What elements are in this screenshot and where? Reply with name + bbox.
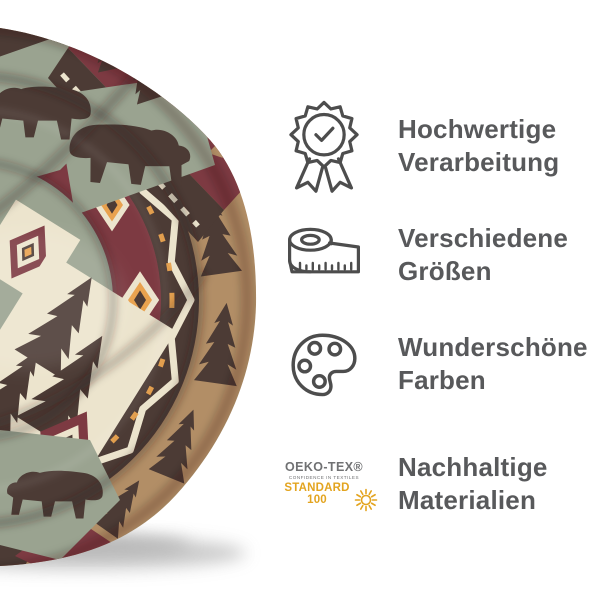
feature-materials: OEKO-TEX® CONFIDENCE IN TEXTILES STANDAR… bbox=[278, 434, 548, 534]
paint-palette-icon bbox=[278, 329, 370, 400]
feature-caption: Wunderschöne Farben bbox=[398, 331, 588, 397]
feature-caption: Verschiedene Größen bbox=[398, 222, 568, 288]
measuring-tape-icon bbox=[278, 223, 370, 287]
oeko-tex-sunburst-icon bbox=[354, 488, 378, 512]
feature-title-line2: Materialien bbox=[398, 484, 548, 517]
feature-quality: Hochwertige Verarbeitung bbox=[278, 94, 559, 198]
oeko-tex-label: OEKO-TEX® CONFIDENCE IN TEXTILES STANDAR… bbox=[278, 461, 370, 506]
feature-sizes: Verschiedene Größen bbox=[278, 206, 568, 304]
feature-caption: Nachhaltige Materialien bbox=[398, 451, 548, 517]
feature-caption: Hochwertige Verarbeitung bbox=[398, 113, 559, 179]
product-infographic: Hochwertige Verarbeitung bbox=[0, 0, 600, 600]
feature-title-line1: Hochwertige bbox=[398, 113, 559, 146]
feature-title-line1: Verschiedene bbox=[398, 222, 568, 255]
oeko-tex-brand: OEKO-TEX® bbox=[278, 461, 370, 474]
feature-title-line2: Farben bbox=[398, 364, 588, 397]
feature-title-line2: Größen bbox=[398, 255, 568, 288]
feature-colors: Wunderschöne Farben bbox=[278, 316, 588, 412]
feature-title-line1: Nachhaltige bbox=[398, 451, 548, 484]
oeko-tex-standard: STANDARD 100 bbox=[278, 482, 356, 506]
feature-title-line2: Verarbeitung bbox=[398, 146, 559, 179]
award-badge-icon bbox=[278, 96, 370, 196]
feature-title-line1: Wunderschöne bbox=[398, 331, 588, 364]
oeko-tex-tagline: CONFIDENCE IN TEXTILES bbox=[278, 476, 370, 481]
